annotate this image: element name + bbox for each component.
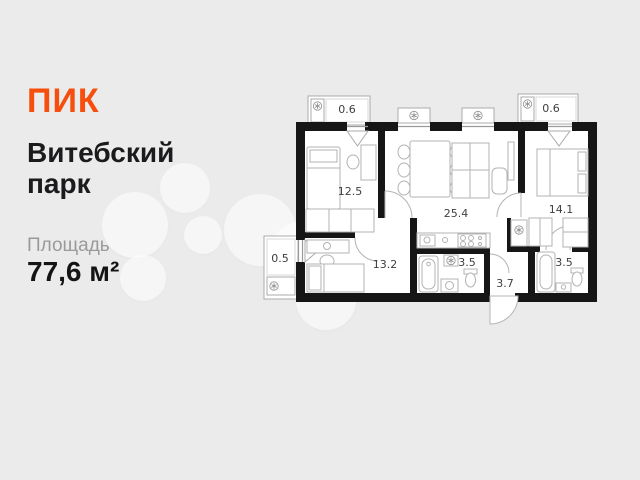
fan-icon	[447, 256, 455, 264]
entrance-door	[490, 296, 518, 324]
balcony-left	[264, 236, 298, 299]
room-label-bathroom1: 3.5	[458, 256, 476, 269]
room-label-balcony-top-right: 0.6	[542, 102, 560, 115]
room-label-bathroom2: 3.5	[555, 256, 573, 269]
room-label-balcony-left: 0.5	[271, 252, 289, 265]
room-label-bedroom3: 13.2	[373, 258, 398, 271]
room-label-bedroom1: 12.5	[338, 185, 363, 198]
floor-plan: 0.6 0.6 0.5 12.5 25.4 14.1 13.2 3.5 3.7 …	[0, 0, 640, 480]
room-label-balcony-top-left: 0.6	[338, 103, 356, 116]
room-label-kitchen-living: 25.4	[444, 207, 469, 220]
room-label-hallway: 3.7	[496, 277, 514, 290]
fan-icon	[515, 226, 523, 234]
room-label-bedroom2: 14.1	[549, 203, 574, 216]
